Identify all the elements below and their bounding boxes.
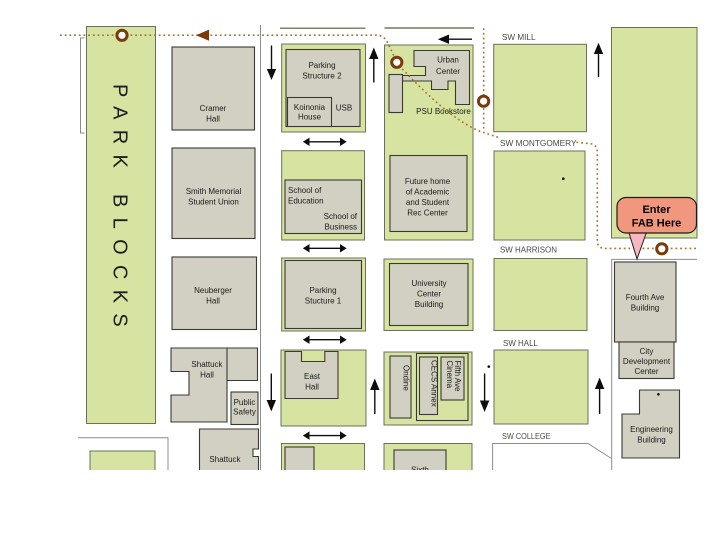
svg-text:East: East (304, 372, 321, 381)
svg-text:Hall: Hall (305, 383, 319, 392)
svg-text:Ondine: Ondine (402, 365, 411, 391)
svg-text:SW MONTGOMERY: SW MONTGOMERY (500, 139, 577, 148)
svg-text:Structure 2: Structure 2 (302, 72, 342, 81)
svg-text:Cinema: Cinema (445, 361, 454, 389)
svg-text:of Academic: of Academic (406, 188, 450, 197)
svg-text:SW MILL: SW MILL (502, 33, 536, 42)
svg-text:Koinonia: Koinonia (294, 103, 326, 112)
svg-text:City: City (640, 347, 654, 356)
svg-text:SW HALL: SW HALL (503, 339, 539, 348)
svg-text:Center: Center (417, 290, 441, 299)
svg-text:Hall: Hall (206, 115, 220, 124)
svg-text:Future home: Future home (405, 177, 451, 186)
svg-text:Development: Development (623, 357, 671, 366)
svg-text:Stucture 1: Stucture 1 (305, 297, 342, 306)
svg-text:Neuberger: Neuberger (194, 286, 232, 295)
svg-text:Building: Building (631, 304, 659, 313)
svg-text:Smith Memorial: Smith Memorial (186, 187, 242, 196)
svg-text:Shattuck: Shattuck (191, 360, 223, 369)
svg-text:and Student: and Student (406, 198, 450, 207)
svg-text:Public: Public (234, 398, 256, 407)
svg-text:FAB Here: FAB Here (632, 218, 682, 230)
svg-text:SW HARRISON: SW HARRISON (500, 246, 557, 255)
svg-text:Hall: Hall (200, 371, 214, 380)
svg-text:CECS Annex: CECS Annex (430, 360, 439, 407)
svg-text:Fourth Ave: Fourth Ave (626, 293, 665, 302)
svg-text:Shattuck: Shattuck (209, 455, 241, 464)
svg-text:Business: Business (325, 223, 357, 232)
svg-text:Building: Building (637, 436, 665, 445)
svg-text:University: University (411, 279, 446, 288)
svg-text:Engineering: Engineering (630, 425, 673, 434)
svg-text:Center: Center (436, 67, 460, 76)
svg-text:Building: Building (415, 300, 443, 309)
svg-text:School of: School of (324, 212, 358, 221)
svg-text:Parking: Parking (308, 61, 335, 70)
svg-text:SW COLLEGE: SW COLLEGE (502, 432, 551, 441)
svg-text:USB: USB (336, 104, 352, 113)
svg-text:Center: Center (634, 367, 658, 376)
svg-text:Rec Center: Rec Center (407, 209, 448, 218)
svg-text:Hall: Hall (206, 297, 220, 306)
svg-text:Parking: Parking (309, 286, 336, 295)
svg-text:School of: School of (288, 186, 322, 195)
svg-text:Student Union: Student Union (188, 198, 239, 207)
svg-text:Enter: Enter (642, 204, 671, 216)
svg-text:House: House (298, 113, 322, 122)
svg-text:Education: Education (288, 197, 324, 206)
svg-text:Urban: Urban (437, 56, 459, 65)
svg-text:PARK BLOCKS: PARK BLOCKS (109, 84, 131, 337)
svg-text:Safety: Safety (233, 408, 256, 417)
svg-text:Cramer: Cramer (200, 104, 227, 113)
